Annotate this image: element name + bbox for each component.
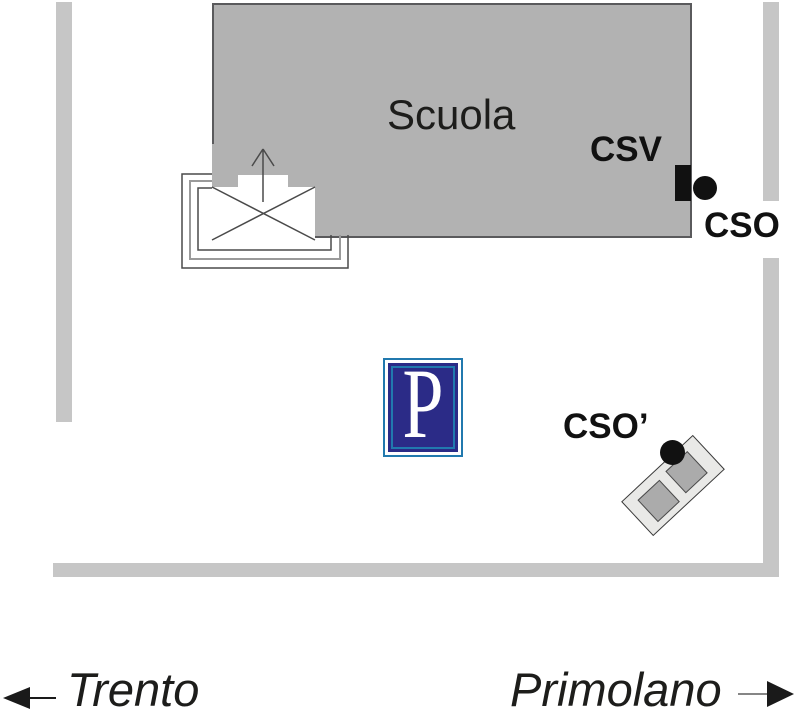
cso-label: CSO — [704, 208, 780, 243]
road-right-lower-segment — [763, 258, 779, 577]
annex-inner-square — [637, 480, 679, 522]
parking-letter: P — [397, 363, 449, 448]
cso-prime-marker-dot — [660, 440, 685, 465]
arrow-right-icon — [738, 678, 796, 709]
arrow-left-icon — [3, 684, 57, 712]
map-canvas: Scuola CSV CSO P CSO’ Trento Primolano — [0, 0, 797, 713]
entrance-ramp-icon — [178, 144, 353, 274]
csv-marker-dot — [693, 176, 717, 200]
destination-primolano: Primolano — [510, 666, 722, 713]
csv-label: CSV — [590, 132, 662, 167]
csv-marker-rect — [675, 165, 691, 201]
parking-sign: P — [383, 358, 463, 457]
road-bottom-segment — [53, 563, 779, 577]
destination-trento: Trento — [67, 666, 199, 713]
cso-prime-label: CSO’ — [563, 409, 649, 444]
school-label: Scuola — [387, 94, 515, 136]
parking-sign-panel: P — [388, 363, 458, 452]
road-left-segment — [56, 2, 72, 422]
road-right-upper-segment — [763, 2, 779, 201]
